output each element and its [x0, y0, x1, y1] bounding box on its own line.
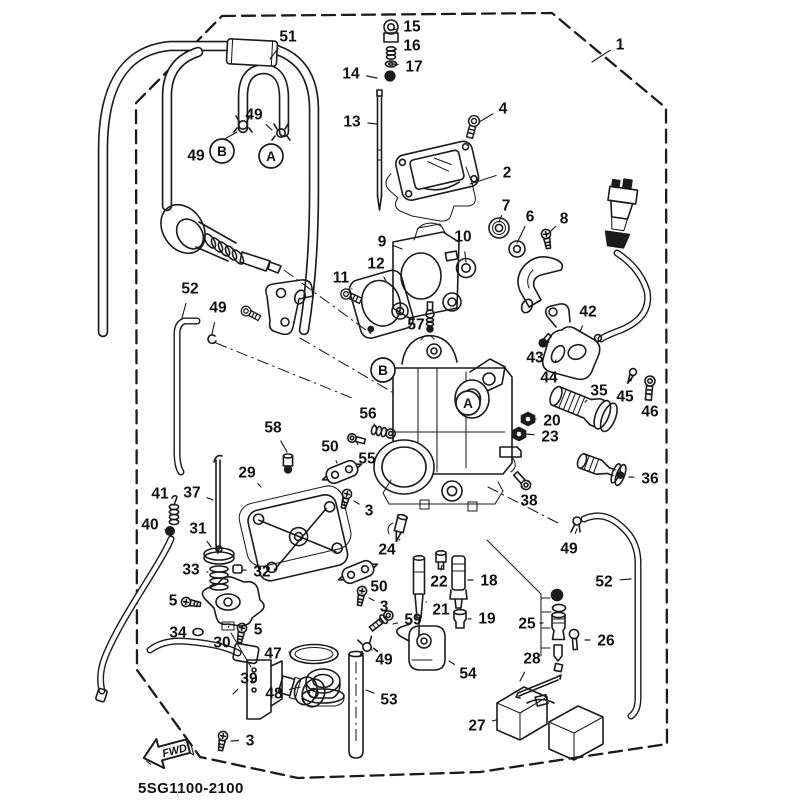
- view-marker-A: A: [456, 391, 480, 415]
- leader-line: [399, 539, 400, 540]
- part-callout-42: 42: [579, 303, 596, 332]
- part-number-label: 45: [616, 388, 634, 405]
- part-callout-3: 3: [369, 598, 389, 615]
- part-number-label: 11: [333, 269, 350, 286]
- part-number-label: 51: [279, 28, 297, 45]
- part-number-label: 33: [182, 561, 200, 578]
- part-number-label: 52: [595, 573, 612, 590]
- part-callout-54: 54: [449, 661, 477, 682]
- part-number-label: 34: [169, 624, 187, 641]
- part-number-label: 3: [380, 598, 389, 615]
- leader-line: [233, 689, 238, 694]
- view-marker-A: A: [259, 144, 283, 168]
- part-callout-24: 24: [378, 539, 399, 558]
- part-number-label: 54: [459, 665, 477, 682]
- leader-line: [336, 461, 337, 463]
- part-callout-47: 47: [264, 645, 291, 662]
- part-callout-8: 8: [546, 210, 569, 236]
- part-number-label: 38: [520, 492, 538, 509]
- part-number-label: 49: [187, 147, 205, 164]
- seal-washers: [457, 218, 563, 314]
- part-number-label: 49: [560, 540, 578, 557]
- part-number-label: 21: [432, 601, 450, 618]
- leader-line: [281, 441, 287, 452]
- leader-line: [354, 501, 359, 504]
- part-number-label: 57: [407, 316, 424, 333]
- part-callout-41: 41: [151, 485, 171, 504]
- leader-line: [449, 661, 455, 665]
- part-number-label: 23: [541, 428, 559, 445]
- part-number-label: 16: [403, 37, 421, 54]
- part-number-label: 6: [526, 208, 535, 225]
- cable-adjuster: [152, 196, 374, 336]
- part-number-label: 10: [454, 228, 471, 245]
- part-callout-50: 50: [321, 438, 338, 463]
- part-callout-31: 31: [189, 520, 211, 547]
- part-number-label: 56: [359, 405, 377, 422]
- part-callout-18: 18: [468, 572, 498, 589]
- part-number-label: 50: [370, 578, 387, 595]
- part-number-label: 49: [375, 651, 393, 668]
- part-callout-7: 7: [499, 197, 510, 222]
- part-callout-4: 4: [479, 100, 508, 122]
- plate-border: [136, 13, 667, 778]
- diagram-code: 5SG1100-2100: [138, 780, 244, 797]
- part-callout-28: 28: [520, 650, 541, 681]
- part-number-label: 55: [358, 450, 376, 467]
- part-number-label: 20: [543, 412, 560, 429]
- leader-line: [182, 304, 186, 319]
- starter-jet: [574, 449, 628, 486]
- part-callout-49: 49: [245, 106, 272, 130]
- part-number-label: 52: [181, 280, 198, 297]
- leader-line: [575, 529, 577, 533]
- leader-line: [207, 498, 213, 500]
- part-number-label: 25: [518, 615, 536, 632]
- cable-bracket: [208, 280, 392, 398]
- part-callout-9: 9: [378, 233, 402, 250]
- leader-line: [369, 598, 374, 601]
- cover-bolt-11: [339, 287, 363, 305]
- leader-line: [517, 226, 525, 243]
- leader-line: [374, 424, 376, 427]
- part-number-label: 14: [342, 65, 360, 82]
- part-number-label: 58: [264, 419, 282, 436]
- leader-line: [470, 176, 496, 185]
- part-callout-29: 29: [238, 464, 261, 487]
- part-callout-23: 23: [526, 428, 559, 445]
- part-number-label: 8: [560, 210, 569, 227]
- part-callout-50: 50: [365, 578, 388, 595]
- part-number-label: 17: [405, 58, 422, 75]
- part-number-label: 5: [169, 592, 178, 609]
- leader-line: [357, 443, 358, 445]
- part-number-label: 5: [254, 621, 263, 638]
- part-callout-49: 49: [560, 529, 578, 557]
- leader-line: [228, 626, 229, 627]
- leader-line: [366, 690, 374, 693]
- part-number-label: 30: [213, 634, 230, 651]
- part-callout-36: 36: [629, 470, 659, 487]
- jet-nut: [522, 413, 535, 426]
- part-number-label: 41: [151, 485, 169, 502]
- part-number-label: 59: [404, 611, 422, 628]
- part-number-label: 18: [480, 572, 498, 589]
- part-number-label: 3: [246, 732, 255, 749]
- leader-line: [258, 484, 261, 487]
- leader-line: [493, 720, 497, 721]
- leader-line: [266, 125, 272, 130]
- part-callout-6: 6: [517, 208, 535, 243]
- leader-line: [465, 252, 466, 262]
- part-callout-52: 52: [595, 573, 631, 590]
- part-number-label: 24: [378, 541, 396, 558]
- part-number-label: 48: [265, 685, 283, 702]
- marker-letter: B: [217, 144, 227, 159]
- part-callout-59: 59: [393, 611, 422, 628]
- leader-line: [585, 400, 587, 402]
- part-number-label: 39: [240, 670, 258, 687]
- part-number-label: 44: [540, 369, 558, 386]
- part-number-label: 31: [189, 520, 207, 537]
- part-callout-58: 58: [264, 419, 287, 452]
- part-callout-37: 37: [183, 484, 213, 501]
- part-callout-17: 17: [393, 58, 423, 75]
- part-number-label: 9: [378, 233, 387, 250]
- leader-line: [207, 541, 211, 547]
- leader-line: [368, 123, 377, 124]
- part-number-label: 27: [468, 717, 485, 734]
- exploded-parts-diagram: FWD: [0, 0, 800, 800]
- part-number-label: 53: [380, 691, 398, 708]
- view-marker-B: B: [210, 139, 234, 163]
- part-number-label: 36: [641, 470, 659, 487]
- marker-letter: A: [266, 149, 276, 164]
- part-number-label: 37: [183, 484, 200, 501]
- leader-line: [212, 323, 215, 334]
- part-callout-52: 52: [181, 280, 198, 318]
- part-callout-11: 11: [333, 269, 352, 289]
- part-number-label: 15: [403, 18, 421, 35]
- part-callout-20: 20: [535, 412, 561, 429]
- part-number-label: 2: [503, 164, 512, 181]
- callout-layer: 1514949151617141342768910121157524942434…: [141, 18, 659, 749]
- part-callout-14: 14: [342, 65, 377, 82]
- part-number-label: 7: [502, 197, 511, 214]
- part-number-label: 19: [478, 610, 496, 627]
- leader-line: [526, 434, 534, 435]
- throttle-valve-housing: [392, 223, 461, 319]
- leader-line: [393, 245, 402, 249]
- part-callout-3: 3: [354, 501, 374, 519]
- part-number-label: 1: [616, 36, 625, 53]
- leader-line: [580, 326, 582, 332]
- part-number-label: 50: [321, 438, 338, 455]
- part-number-label: 12: [367, 255, 384, 272]
- part-number-label: 35: [590, 382, 608, 399]
- part-callout-27: 27: [468, 717, 496, 734]
- part-callout-55: 55: [357, 443, 376, 467]
- part-number-label: 26: [597, 632, 615, 649]
- starter-plunger-screw: [426, 302, 434, 332]
- tps-assembly: [538, 177, 656, 400]
- part-number-label: 13: [343, 113, 361, 130]
- part-number-label: 47: [264, 645, 281, 662]
- part-callout-19: 19: [468, 610, 496, 627]
- leader-line: [620, 579, 631, 580]
- part-number-label: 40: [141, 516, 158, 533]
- part-callout-56: 56: [359, 405, 377, 427]
- leader-line: [371, 649, 372, 650]
- part-callout-46: 46: [641, 394, 659, 420]
- part-callout-3: 3: [231, 732, 255, 749]
- part-callout-49: 49: [209, 299, 227, 334]
- part-number-label: 28: [523, 650, 541, 667]
- cover-gasket: [386, 167, 475, 221]
- part-callout-33: 33: [182, 561, 208, 578]
- leader-line: [384, 277, 386, 281]
- part-callout-21: 21: [426, 601, 450, 618]
- leader-line: [479, 114, 493, 122]
- leader-line: [367, 76, 377, 78]
- parts-diagram-page: FWD: [0, 0, 800, 800]
- jet-needle-13: [377, 90, 382, 210]
- part-number-label: 4: [499, 100, 508, 117]
- view-marker-B: B: [371, 358, 395, 382]
- part-callout-39: 39: [233, 670, 258, 694]
- part-number-label: 29: [238, 464, 256, 481]
- drain-plug-set: [290, 609, 445, 758]
- part-number-label: 49: [209, 299, 227, 316]
- jet-nut: [513, 428, 526, 441]
- cover-bolt: [464, 114, 480, 139]
- part-callout-12: 12: [367, 255, 386, 281]
- part-callout-49: 49: [371, 649, 393, 668]
- part-callout-16: 16: [393, 37, 421, 54]
- marker-letter: B: [378, 363, 388, 378]
- part-number-label: 3: [365, 502, 374, 519]
- part-number-label: 46: [641, 403, 659, 420]
- part-callout-53: 53: [366, 690, 398, 708]
- part-callout-45: 45: [616, 378, 634, 405]
- leader-line: [520, 672, 525, 681]
- leader-line: [393, 64, 398, 65]
- part-number-label: 43: [526, 349, 544, 366]
- marker-letter: A: [463, 396, 473, 411]
- leader-line: [393, 623, 398, 624]
- part-callout-38: 38: [520, 486, 538, 509]
- float-assembly: [497, 687, 603, 760]
- part-callout-26: 26: [585, 632, 615, 649]
- part-number-label: 32: [253, 563, 270, 580]
- part-callout-40: 40: [141, 516, 165, 533]
- part-callout-25: 25: [518, 615, 543, 632]
- part-callout-13: 13: [343, 113, 377, 130]
- part-number-label: 42: [579, 303, 596, 320]
- part-number-label: 49: [245, 106, 263, 123]
- part-number-label: 22: [430, 573, 447, 590]
- part-callout-32: 32: [243, 563, 271, 580]
